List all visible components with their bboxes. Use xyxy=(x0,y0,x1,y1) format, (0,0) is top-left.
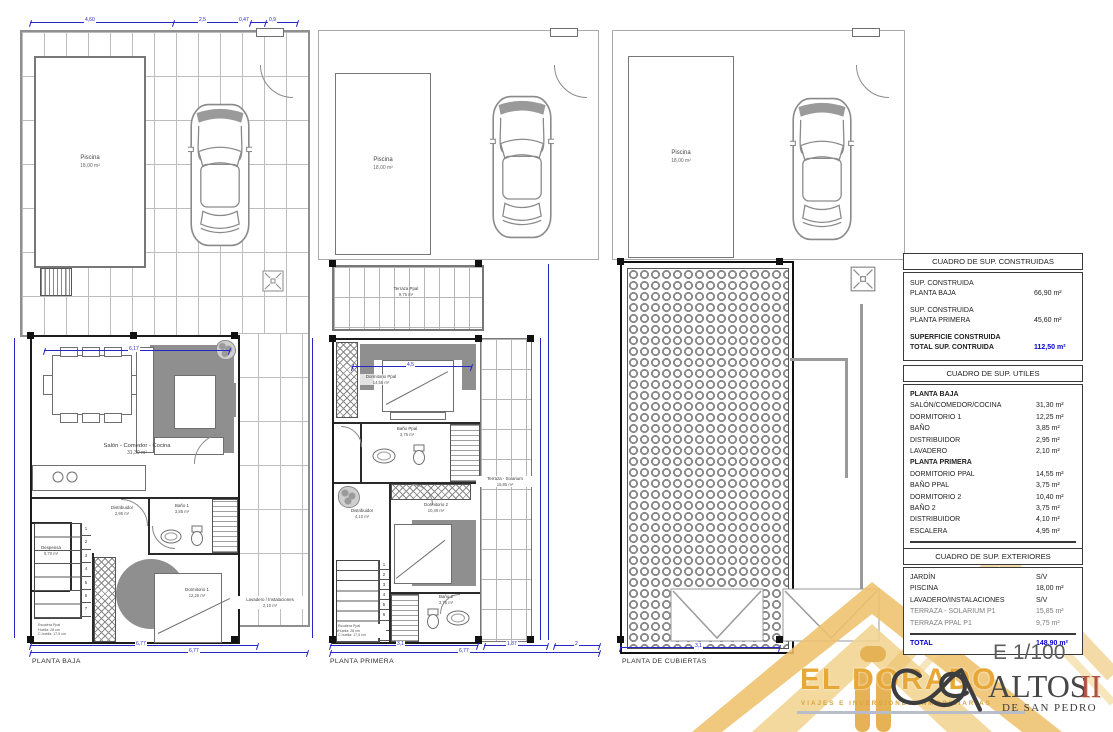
dim-label: 6,77 xyxy=(458,648,470,654)
room-label-dormitorio1: Dormitorio 1 12,25 m² xyxy=(172,587,222,598)
column xyxy=(329,335,336,342)
dim-label: 4,60 xyxy=(84,17,96,23)
toilet xyxy=(426,608,440,630)
table-row: TERRAZA - SOLARIUM P115,85 m² xyxy=(910,606,1076,617)
car-top-view xyxy=(188,96,252,254)
staircase xyxy=(34,523,82,619)
dim-label: 2,5 xyxy=(198,17,207,23)
table-row: DISTRIBUIDOR2,95 m² xyxy=(910,435,1076,446)
dim-label: 3,1 xyxy=(396,641,405,647)
roof-slope-mark xyxy=(782,588,880,642)
wall xyxy=(148,497,150,555)
dimension-line xyxy=(540,338,541,640)
dim-label: 2 xyxy=(574,641,579,647)
wall xyxy=(360,422,362,482)
column xyxy=(231,636,238,643)
room-label-dorm2: Dormitorio 2 10,40 m² xyxy=(406,502,466,513)
column xyxy=(27,332,34,339)
room-label-distribuidor2: Distribuidor 4,10 m² xyxy=(336,508,388,519)
table-section: PLANTA PRIMERA xyxy=(910,457,1076,468)
bed xyxy=(394,524,452,584)
table-title: CUADRO DE SUP. CONSTRUIDAS xyxy=(903,253,1083,270)
room-label-dorm-ppal: Dormitorio Ppal 14,55 m² xyxy=(358,374,404,385)
column xyxy=(329,636,336,643)
pool: Piscina 18,00 m² xyxy=(335,73,431,255)
dim-label: 0,47 xyxy=(238,17,250,23)
dining-table xyxy=(52,355,132,415)
table-row: DISTRIBUIDOR4,10 m² xyxy=(910,514,1076,525)
wall xyxy=(845,358,848,478)
terrace xyxy=(332,265,484,331)
column xyxy=(776,636,783,643)
tv-panel xyxy=(231,383,236,417)
house-ground-floor: Salón - Comedor - Cocina 31,30 m² Distri… xyxy=(30,335,240,644)
table-row: DORMITORIO 112,25 m² xyxy=(910,412,1076,423)
wardrobe xyxy=(336,342,358,418)
column xyxy=(231,332,238,339)
drain-symbol xyxy=(262,270,284,292)
table-row: SUP. CONSTRUIDA PLANTA BAJA66,90 m² xyxy=(910,279,1076,298)
drain-symbol xyxy=(850,266,876,292)
table-title: CUADRO DE SUP. EXTERIORES xyxy=(903,548,1083,565)
table-row: BAÑO 23,75 m² xyxy=(910,503,1076,514)
car-top-view xyxy=(790,90,854,248)
cooktop xyxy=(50,467,84,487)
wardrobe xyxy=(94,557,116,642)
floorplan-planta-baja: Piscina 18,00 m² xyxy=(20,28,310,668)
plan-title: PLANTA PRIMERA xyxy=(330,658,394,665)
column xyxy=(776,258,783,265)
shower xyxy=(391,594,419,642)
dim-label: 6,17 xyxy=(128,346,140,352)
table-sup-exteriores: CUADRO DE SUP. EXTERIORES JARDÍNS/V PISC… xyxy=(903,548,1083,655)
pool: Piscina 18,00 m² xyxy=(34,56,146,268)
chair xyxy=(82,413,100,423)
wall xyxy=(32,497,238,499)
chair xyxy=(43,375,53,395)
stair-note: Escalera Ppal Huella: 28 cm C.huella: 17… xyxy=(38,623,90,637)
chair xyxy=(82,347,100,357)
shower xyxy=(212,499,238,553)
column xyxy=(527,335,534,342)
dimension-line xyxy=(312,338,313,638)
column xyxy=(475,260,482,267)
room-label-distribuidor: Distribuidor 2,95 m² xyxy=(98,505,146,516)
table-row: SUP. CONSTRUIDA PLANTA PRIMERA45,60 m² xyxy=(910,306,1076,325)
column xyxy=(527,636,534,643)
room-label-bano2: Baño 2 3,75 m² xyxy=(426,594,466,605)
toilet xyxy=(412,444,426,466)
column xyxy=(617,636,624,643)
table-row: DORMITORIO PPAL14,55 m² xyxy=(910,469,1076,480)
dimension-line xyxy=(548,264,549,640)
bed-bench xyxy=(390,412,446,420)
column xyxy=(617,258,624,265)
table-sup-construidas: CUADRO DE SUP. CONSTRUIDAS SUP. CONSTRUI… xyxy=(903,253,1083,361)
dim-label: 4,5 xyxy=(406,362,415,368)
pool-label: Piscina xyxy=(80,155,99,161)
room-label-lavadero: Lavadero / Instalaciones 2,10 m² xyxy=(232,596,308,609)
table-row: DORMITORIO 210,40 m² xyxy=(910,492,1076,503)
table-row: LAVADERO/INSTALACIONESS/V xyxy=(910,595,1076,606)
table-row: JARDÍNS/V xyxy=(910,572,1076,583)
pool: Piscina 18,00 m² xyxy=(628,56,734,258)
column xyxy=(475,636,482,643)
plan-title: PLANTA BAJA xyxy=(32,658,81,665)
chair xyxy=(104,347,122,357)
dim-label: 6,77 xyxy=(135,641,147,647)
table-row: TERRAZA PPAL P19,75 m² xyxy=(910,618,1076,629)
table-total-row: SUPERFICIE CONSTRUIDA TOTAL SUP. CONTRUI… xyxy=(910,333,1076,352)
gate xyxy=(256,28,284,37)
room-label-despensa: Despensa 0,70 m² xyxy=(32,545,70,556)
table-row: BAÑO PPAL3,75 m² xyxy=(910,480,1076,491)
chair xyxy=(60,347,78,357)
wall xyxy=(790,358,848,361)
chair xyxy=(60,413,78,423)
altos-logo-text: ALTOS xyxy=(988,668,1088,705)
dim-label: 0,9 xyxy=(268,17,277,23)
pool-area: 18,00 m² xyxy=(80,163,100,169)
dimension-line xyxy=(30,652,308,653)
dim-label: 3,1 xyxy=(694,643,703,649)
plan-title: PLANTA DE CUBIERTAS xyxy=(622,658,707,665)
dim-label: 1,87 xyxy=(506,641,518,647)
table-section: PLANTA BAJA xyxy=(910,389,1076,400)
room-label-salon: Salón - Comedor - Cocina 31,30 m² xyxy=(72,443,202,456)
table-title: CUADRO DE SUP. UTILES xyxy=(903,365,1083,382)
table-row: LAVADERO2,10 m² xyxy=(910,446,1076,457)
headboard-side xyxy=(462,360,476,390)
altos-numeral: II xyxy=(1080,668,1101,705)
bed xyxy=(154,573,222,643)
table-row: BAÑO3,85 m² xyxy=(910,423,1076,434)
drain-grille xyxy=(40,268,72,296)
room-label-solarium: Terraza - Solarium 15,85 m² xyxy=(476,476,534,487)
stair-note: Escalera Ppal Huella: 28 cm C.huella: 17… xyxy=(338,624,386,638)
table-row: SALÓN/COMEDOR/COCINA31,30 m² xyxy=(910,400,1076,411)
wall xyxy=(148,553,238,555)
room-label-bano-ppal: Baño Ppal 3,75 m² xyxy=(382,426,432,437)
dimension-line xyxy=(30,22,298,23)
toilet xyxy=(190,525,204,547)
gate xyxy=(550,28,578,37)
car-top-view xyxy=(490,88,554,246)
solarium-terrace xyxy=(480,338,532,642)
chair xyxy=(104,413,122,423)
floorplan-cubiertas: Piscina 18,00 m² 3,1 PLANTA DE CUBIERT xyxy=(612,28,907,668)
sink xyxy=(372,448,396,464)
room-label-terraza: Terraza Ppal 9,75 m² xyxy=(358,286,454,297)
side-yard-tiled xyxy=(234,333,310,627)
sofa xyxy=(136,347,154,453)
stair-numbers: 1234567 xyxy=(80,523,91,617)
door-arc xyxy=(320,426,362,468)
column xyxy=(475,335,482,342)
headboard-wall xyxy=(360,344,476,360)
table-sup-utiles: CUADRO DE SUP. UTILES PLANTA BAJA SALÓN/… xyxy=(903,365,1083,564)
plant xyxy=(338,486,360,508)
table-row: ESCALERA4,95 m² xyxy=(910,526,1076,537)
house-first-floor: Dormitorio Ppal 14,55 m² Baño Ppal 3,75 … xyxy=(332,338,482,644)
roof-slope-mark xyxy=(670,588,764,642)
shower xyxy=(450,424,480,482)
room-label-bano1: Baño 1 3,85 m² xyxy=(160,503,204,514)
column xyxy=(130,332,137,339)
floorplan-planta-primera: Piscina 18,00 m² Terraza Ppal 9,75 m² Do… xyxy=(318,28,601,668)
altos-subtitle: DE SAN PEDRO xyxy=(1002,702,1097,714)
table-row: PISCINA18,00 m² xyxy=(910,583,1076,594)
gate xyxy=(852,28,880,37)
column xyxy=(329,260,336,267)
dim-label: 6,77 xyxy=(188,648,200,654)
dimension-line xyxy=(14,338,15,638)
coffee-table xyxy=(174,375,216,429)
